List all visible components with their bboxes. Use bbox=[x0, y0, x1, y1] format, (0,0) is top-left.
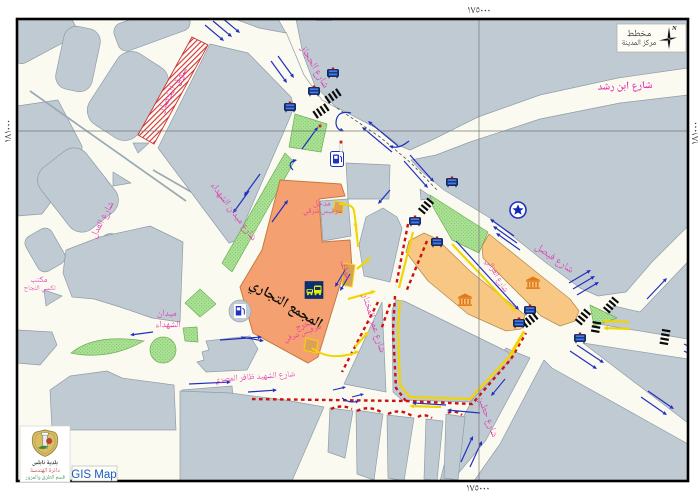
svg-text:GIS Map: GIS Map bbox=[71, 469, 116, 481]
svg-text:N: N bbox=[671, 25, 677, 32]
